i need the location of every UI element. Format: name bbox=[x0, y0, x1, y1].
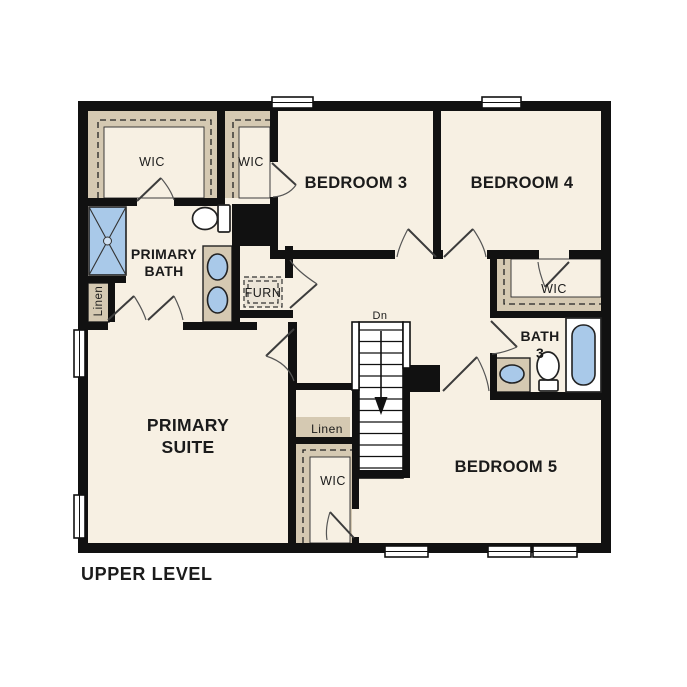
wall-segment bbox=[490, 311, 601, 318]
toilet-icon bbox=[193, 205, 231, 232]
plumbing-chase bbox=[232, 204, 275, 246]
wall-segment bbox=[288, 390, 296, 543]
bath-linen-label: Linen bbox=[93, 286, 105, 317]
wall-segment bbox=[78, 101, 88, 553]
wall-segment bbox=[78, 101, 611, 111]
bedroom5-wic-floor bbox=[310, 457, 350, 543]
wall-segment bbox=[183, 322, 257, 330]
primary-wic-label: WIC bbox=[139, 155, 165, 169]
stair-rail-left bbox=[352, 322, 359, 390]
wall-segment bbox=[174, 198, 225, 206]
sink-icon bbox=[500, 365, 524, 383]
stair-rail-right bbox=[403, 322, 410, 368]
wall-segment bbox=[403, 368, 410, 478]
bedroom4-wic-label: WIC bbox=[541, 282, 567, 296]
wall-segment bbox=[88, 322, 108, 330]
wall-segment bbox=[437, 250, 443, 259]
bedroom4-label: BEDROOM 4 bbox=[471, 174, 574, 192]
bedroom5-label: BEDROOM 5 bbox=[455, 458, 558, 476]
bath3-label-line1: BATH bbox=[520, 328, 559, 344]
wall-segment bbox=[433, 111, 441, 259]
bedroom3-label: BEDROOM 3 bbox=[305, 174, 408, 192]
plan-title: UPPER LEVEL bbox=[81, 564, 213, 584]
wall-segment bbox=[296, 437, 352, 444]
wall-segment bbox=[240, 310, 293, 318]
wall-segment bbox=[352, 537, 359, 547]
wall-segment bbox=[352, 470, 410, 478]
floor-plan-page: WIC WIC BEDROOM 3 BEDROOM 4 PRIMARY BATH… bbox=[0, 0, 687, 687]
wall-segment bbox=[410, 365, 440, 392]
primary-suite-label-line2: SUITE bbox=[161, 437, 214, 457]
primary-bath-label-line1: PRIMARY bbox=[131, 246, 198, 262]
shower-icon bbox=[89, 207, 126, 275]
primary-suite-label-line1: PRIMARY bbox=[147, 415, 229, 435]
wall-segment bbox=[490, 259, 497, 311]
wall-segment bbox=[569, 250, 601, 259]
primary-bath-label-line2: BATH bbox=[144, 263, 183, 279]
wall-segment bbox=[88, 276, 126, 283]
hall-linen-label: Linen bbox=[311, 422, 343, 436]
wall-segment bbox=[217, 111, 225, 206]
staircase bbox=[352, 322, 410, 478]
wall-segment bbox=[270, 111, 278, 162]
bathtub-icon bbox=[566, 318, 601, 392]
wall-segment bbox=[601, 101, 611, 553]
floor-plan-drawing: WIC WIC BEDROOM 3 BEDROOM 4 PRIMARY BATH… bbox=[0, 0, 687, 687]
wall-segment bbox=[352, 390, 359, 509]
bedroom5-wic-label: WIC bbox=[320, 474, 346, 488]
bedroom3-wic-label: WIC bbox=[238, 155, 264, 169]
wall-segment bbox=[88, 198, 137, 206]
wall-segment bbox=[487, 250, 539, 259]
wall-segment bbox=[232, 246, 240, 322]
bath3-label-line2: 3 bbox=[536, 345, 544, 361]
wall-segment bbox=[490, 392, 601, 400]
wall-segment bbox=[288, 383, 357, 390]
furnace-label: FURN bbox=[245, 286, 282, 300]
stairs-down-label: Dn bbox=[372, 310, 387, 322]
